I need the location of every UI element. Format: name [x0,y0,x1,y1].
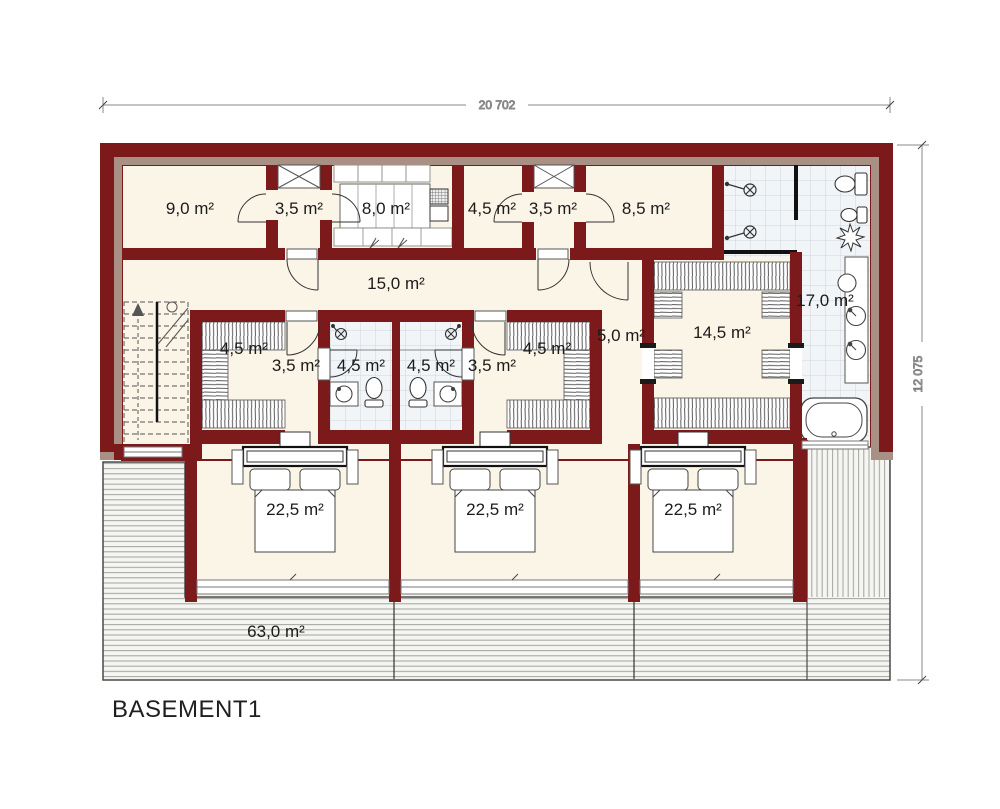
sink-icon [336,386,352,402]
wall-outer-right [879,143,893,460]
dimension-right: 12 075 [897,141,929,684]
room-area-label: 8,5 m² [622,199,671,218]
bathtub-icon [801,398,867,442]
room-area-label: 4,5 m² [337,356,386,375]
room-area-label: 5,0 m² [597,326,646,345]
shower-partition [794,165,798,220]
shaft-icon [534,165,574,188]
bath-left-tile [330,322,392,430]
window-band [802,441,868,449]
dimension-height-label: 12 075 [911,355,925,392]
plan-title: BASEMENT1 [112,696,262,723]
room-area-label: 22,5 m² [466,500,524,519]
dryer-icon [430,206,448,221]
cabinet-icon [334,228,452,246]
room-area-label: 3,5 m² [468,356,517,375]
shower-partition [724,250,797,254]
wardrobe-icon [762,350,790,378]
room-area-label: 8,0 m² [362,199,411,218]
wardrobe-icon [654,398,790,428]
room-area-label: 9,0 m² [166,199,215,218]
bath-right-tile [400,322,462,430]
room-area-label: 3,5 m² [529,199,578,218]
wardrobe-icon [654,350,682,378]
washer-icon [430,189,448,204]
wardrobe-icon [654,262,790,290]
room-area-label: 4,5 m² [468,199,517,218]
wall-outer-left [100,143,114,460]
door-opening [640,343,656,384]
deck-left-strip [103,462,185,597]
wardrobe-icon [762,292,790,318]
sink-icon [440,386,456,402]
room-area-label: 3,5 m² [272,356,321,375]
dimension-width-label: 20 702 [479,98,516,112]
room-area-label: 17,0 m² [796,291,854,310]
toilet-icon [365,378,383,408]
wardrobe-icon [202,400,285,428]
wall-outer-top [100,143,893,157]
floor-plan: 9,0 m² 3,5 m² 8,0 m² 4,5 m² 3,5 m² 8,5 m… [0,0,1000,809]
bidet-icon [841,207,867,223]
dimension-top: 20 702 [99,97,894,113]
toilet-icon [409,378,427,408]
room-area-label: 22,5 m² [664,500,722,519]
room-area-label: 4,5 m² [407,356,456,375]
room-area-label: 14,5 m² [693,323,751,342]
room-area-label: 22,5 m² [266,500,324,519]
wardrobe-icon [654,292,682,318]
beds [232,432,756,552]
door-opening [788,343,804,384]
window-band [124,447,182,457]
room-area-label: 4,5 m² [523,339,572,358]
room-area-label: 63,0 m² [247,622,305,641]
wardrobe-icon [507,400,590,428]
basin-icon [838,274,856,292]
floor-plan-page: 9,0 m² 3,5 m² 8,0 m² 4,5 m² 3,5 m² 8,5 m… [0,0,1000,809]
room-area-label: 3,5 m² [275,199,324,218]
deck-bottom [103,597,890,680]
sink-icon [847,341,866,360]
room-area-label: 4,5 m² [220,339,269,358]
room-area-label: 15,0 m² [367,274,425,293]
shaft-icon [278,165,320,188]
deck-right-strip [807,447,890,597]
plant-icon [837,224,864,251]
